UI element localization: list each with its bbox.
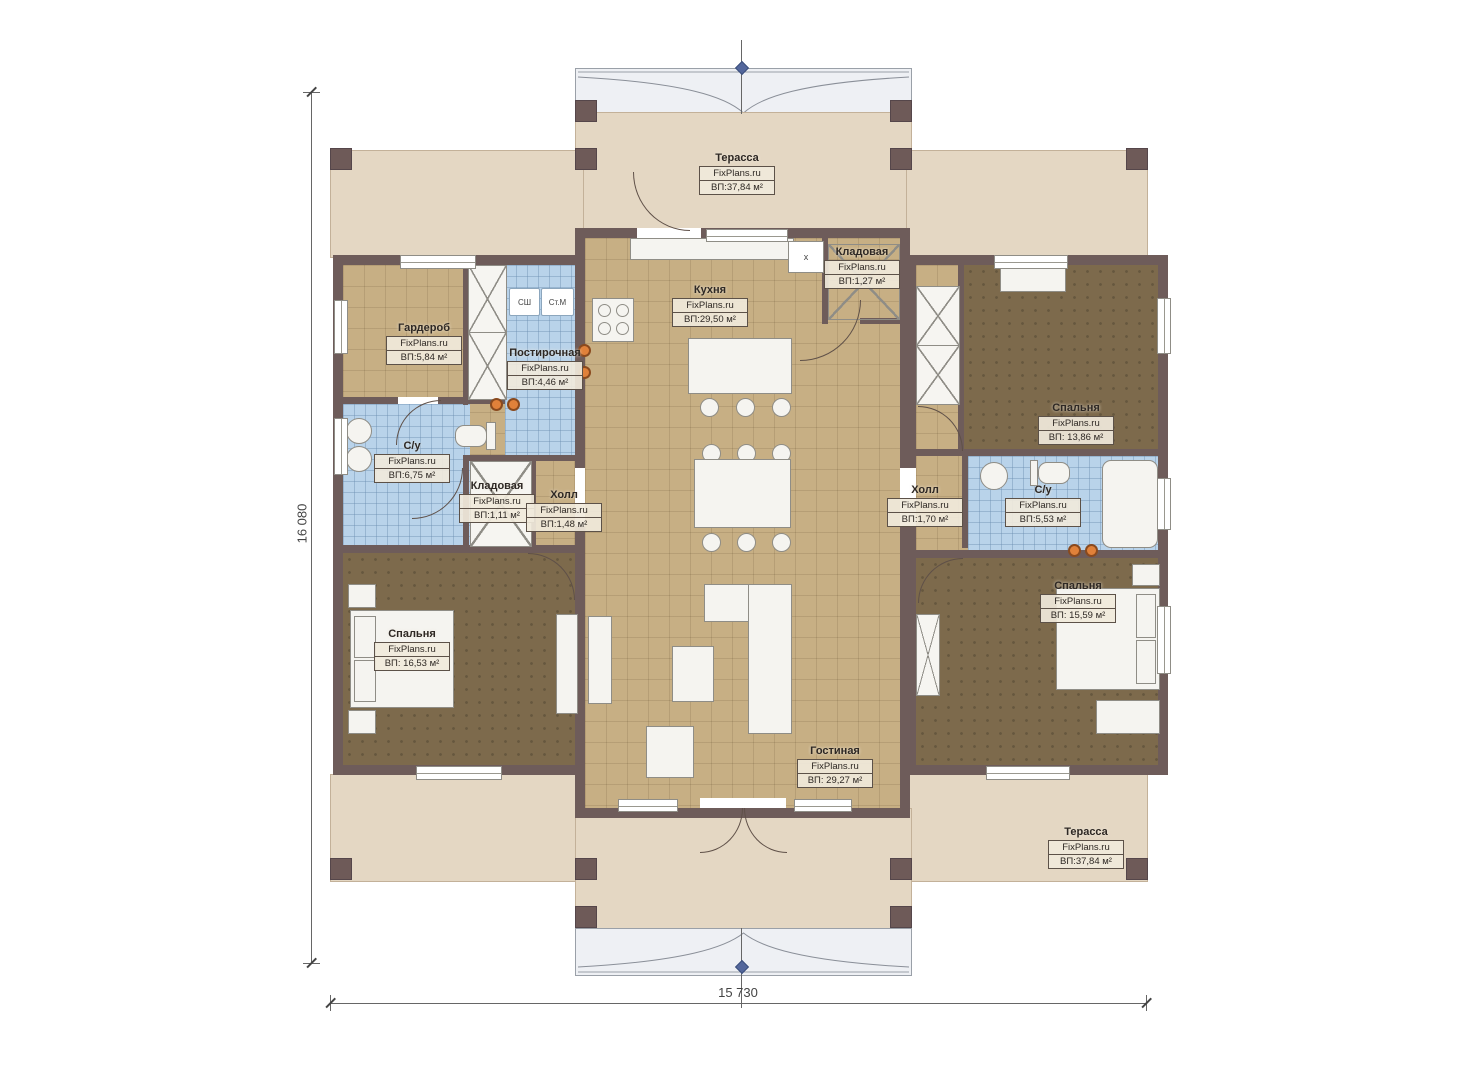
dimension-label-width: 15 730	[698, 985, 778, 1000]
burner	[616, 304, 629, 317]
room-label-bedroom-bottomright: Спальня FixPlans.ru ВП: 15,59 м²	[1040, 580, 1116, 623]
nightstand	[1132, 564, 1160, 586]
terrace-post	[330, 858, 352, 880]
room-area: ВП:5,53 м²	[1006, 512, 1080, 526]
storage-x-unit	[468, 332, 507, 400]
room-info-box: FixPlans.ru ВП: 16,53 м²	[374, 642, 450, 671]
watermark: FixPlans.ru	[1006, 499, 1080, 512]
watermark: FixPlans.ru	[508, 362, 582, 375]
room-name: Гардероб	[386, 322, 462, 334]
terrace-bottom-left	[330, 774, 584, 882]
room-label-hall-left: Холл FixPlans.ru ВП:1,48 м²	[526, 489, 602, 532]
room-name: Холл	[887, 484, 963, 496]
light-dot	[490, 398, 503, 411]
window	[334, 300, 348, 354]
dresser	[1096, 700, 1160, 734]
terrace-post	[575, 100, 597, 122]
room-area: ВП:1,11 м²	[460, 508, 534, 522]
light-dot	[507, 398, 520, 411]
stool	[772, 398, 791, 417]
room-area: ВП:29,50 м²	[673, 312, 747, 326]
coffee-table	[672, 646, 714, 702]
watermark: FixPlans.ru	[700, 167, 774, 180]
watermark: FixPlans.ru	[460, 495, 534, 508]
sink	[346, 418, 372, 444]
dining-table	[694, 459, 791, 528]
pillow	[354, 616, 376, 658]
room-info-box: FixPlans.ru ВП: 15,59 м²	[1040, 594, 1116, 623]
wardrobe	[556, 614, 578, 714]
watermark: FixPlans.ru	[1039, 417, 1113, 430]
room-area: ВП: 13,86 м²	[1039, 430, 1113, 444]
stool	[700, 398, 719, 417]
room-name: Кухня	[672, 284, 748, 296]
room-name: Гостиная	[797, 745, 873, 757]
room-info-box: FixPlans.ru ВП:1,48 м²	[526, 503, 602, 532]
room-area: ВП:6,75 м²	[375, 468, 449, 482]
room-info-box: FixPlans.ru ВП:1,27 м²	[824, 260, 900, 289]
appliance-box-x: x	[788, 241, 824, 273]
bathtub	[1102, 460, 1158, 548]
room-name: Спальня	[1040, 580, 1116, 592]
burner	[616, 322, 629, 335]
storage-x-unit	[916, 345, 960, 405]
stool	[736, 398, 755, 417]
watermark: FixPlans.ru	[825, 261, 899, 274]
dimension-label-height: 16 080	[295, 484, 310, 564]
window	[706, 229, 788, 242]
room-label-pantry-left: Кладовая FixPlans.ru ВП:1,11 м²	[459, 480, 535, 523]
room-info-box: FixPlans.ru ВП:29,50 м²	[672, 298, 748, 327]
room-info-box: FixPlans.ru ВП:5,84 м²	[386, 336, 462, 365]
room-name: Постирочная	[507, 347, 583, 359]
room-area: ВП:1,48 м²	[527, 517, 601, 531]
room-area: ВП: 16,53 м²	[375, 656, 449, 670]
room-info-box: FixPlans.ru ВП:4,46 м²	[507, 361, 583, 390]
room-info-box: FixPlans.ru ВП:6,75 м²	[374, 454, 450, 483]
room-label-laundry: Постирочная FixPlans.ru ВП:4,46 м²	[507, 347, 583, 390]
pillow	[354, 660, 376, 702]
stove	[592, 298, 634, 342]
room-label-hall-right: Холл FixPlans.ru ВП:1,70 м²	[887, 484, 963, 527]
room-info-box: FixPlans.ru ВП:1,11 м²	[459, 494, 535, 523]
tv-stand	[588, 616, 612, 704]
watermark: FixPlans.ru	[375, 455, 449, 468]
room-label-bedroom-left: Спальня FixPlans.ru ВП: 16,53 м²	[374, 628, 450, 671]
dimension-line-vertical	[311, 92, 312, 964]
terrace-door-gap	[700, 798, 786, 808]
terrace-post	[575, 906, 597, 928]
room-label-bathroom-right: С/у FixPlans.ru ВП:5,53 м²	[1005, 484, 1081, 527]
watermark: FixPlans.ru	[527, 504, 601, 517]
room-name: С/у	[374, 440, 450, 452]
room-info-box: FixPlans.ru ВП:5,53 м²	[1005, 498, 1081, 527]
terrace-post	[890, 906, 912, 928]
storage-x-unit	[916, 286, 960, 346]
window	[794, 799, 852, 812]
window	[1157, 298, 1171, 354]
watermark: FixPlans.ru	[888, 499, 962, 512]
chair	[702, 533, 721, 552]
sink	[346, 446, 372, 472]
storage-x-unit	[468, 265, 507, 333]
watermark: FixPlans.ru	[673, 299, 747, 312]
room-name: Холл	[526, 489, 602, 501]
chair	[737, 533, 756, 552]
room-area: ВП:1,70 м²	[888, 512, 962, 526]
sink	[980, 462, 1008, 490]
nightstand	[348, 584, 376, 608]
toilet-tank	[486, 422, 496, 450]
room-name: Спальня	[374, 628, 450, 640]
terrace-post	[1126, 858, 1148, 880]
roof-overhang-top	[575, 68, 912, 118]
window	[334, 418, 348, 475]
room-area: ВП: 15,59 м²	[1041, 608, 1115, 622]
room-label-pantry-top: Кладовая FixPlans.ru ВП:1,27 м²	[824, 246, 900, 289]
room-label-terrace-top: Терасса FixPlans.ru ВП:37,84 м²	[699, 152, 775, 195]
toilet-tank	[1030, 460, 1038, 486]
sofa-section	[748, 584, 792, 734]
burner	[598, 322, 611, 335]
nightstand	[348, 710, 376, 734]
watermark: FixPlans.ru	[375, 643, 449, 656]
watermark: FixPlans.ru	[798, 760, 872, 773]
watermark: FixPlans.ru	[1041, 595, 1115, 608]
window	[994, 255, 1068, 269]
kitchen-island	[688, 338, 792, 394]
window	[986, 766, 1070, 780]
closet-box: СШ	[509, 288, 540, 316]
terrace-post	[575, 858, 597, 880]
terrace-top-left	[330, 150, 584, 258]
room-info-box: FixPlans.ru ВП: 29,27 м²	[797, 759, 873, 788]
room-area: ВП:37,84 м²	[1049, 854, 1123, 868]
watermark: FixPlans.ru	[1049, 841, 1123, 854]
dimension-line-horizontal	[330, 1003, 1146, 1004]
terrace-post	[575, 148, 597, 170]
room-area: ВП:1,27 м²	[825, 274, 899, 288]
room-name: Кладовая	[824, 246, 900, 258]
terrace-bottom-center	[575, 808, 912, 934]
room-name: С/у	[1005, 484, 1081, 496]
pillow	[1136, 640, 1156, 684]
room-label-wardrobe: Гардероб FixPlans.ru ВП:5,84 м²	[386, 322, 462, 365]
washing-machine-box: Ст.М	[541, 288, 574, 316]
room-area: ВП:4,46 м²	[508, 375, 582, 389]
cabinet	[646, 726, 694, 778]
room-name: Спальня	[1038, 402, 1114, 414]
room-area: ВП:5,84 м²	[387, 350, 461, 364]
room-name: Кладовая	[459, 480, 535, 492]
toilet	[455, 425, 487, 447]
wall	[343, 545, 575, 553]
entry-door-gap	[637, 228, 701, 238]
terrace-post	[1126, 148, 1148, 170]
window	[1157, 478, 1171, 530]
terrace-post	[890, 100, 912, 122]
storage-x-unit	[916, 614, 940, 696]
wall	[916, 550, 1158, 558]
floor-plan-canvas: СШ Ст.М x	[0, 0, 1474, 1080]
room-label-kitchen: Кухня FixPlans.ru ВП:29,50 м²	[672, 284, 748, 327]
room-info-box: FixPlans.ru ВП: 13,86 м²	[1038, 416, 1114, 445]
light-dot	[1085, 544, 1098, 557]
window	[416, 766, 502, 780]
room-area: ВП:37,84 м²	[700, 180, 774, 194]
dresser	[1000, 266, 1066, 292]
room-label-bedroom-topright: Спальня FixPlans.ru ВП: 13,86 м²	[1038, 402, 1114, 445]
window	[1157, 606, 1171, 674]
burner	[598, 304, 611, 317]
axis-line-top	[741, 40, 742, 114]
terrace-post	[330, 148, 352, 170]
terrace-post	[890, 858, 912, 880]
room-area: ВП: 29,27 м²	[798, 773, 872, 787]
pillow	[1136, 594, 1156, 638]
room-label-livingroom: Гостиная FixPlans.ru ВП: 29,27 м²	[797, 745, 873, 788]
room-label-bathroom-left: С/у FixPlans.ru ВП:6,75 м²	[374, 440, 450, 483]
room-name: Терасса	[699, 152, 775, 164]
toilet	[1038, 462, 1070, 484]
watermark: FixPlans.ru	[387, 337, 461, 350]
roof-curve-top	[576, 69, 911, 117]
room-info-box: FixPlans.ru ВП:37,84 м²	[1048, 840, 1124, 869]
window	[618, 799, 678, 812]
room-info-box: FixPlans.ru ВП:37,84 м²	[699, 166, 775, 195]
chair	[772, 533, 791, 552]
light-dot	[1068, 544, 1081, 557]
room-label-terrace-bottom: Терасса FixPlans.ru ВП:37,84 м²	[1048, 826, 1124, 869]
terrace-top-right	[906, 150, 1148, 258]
room-name: Терасса	[1048, 826, 1124, 838]
window	[400, 255, 476, 269]
terrace-post	[890, 148, 912, 170]
room-info-box: FixPlans.ru ВП:1,70 м²	[887, 498, 963, 527]
